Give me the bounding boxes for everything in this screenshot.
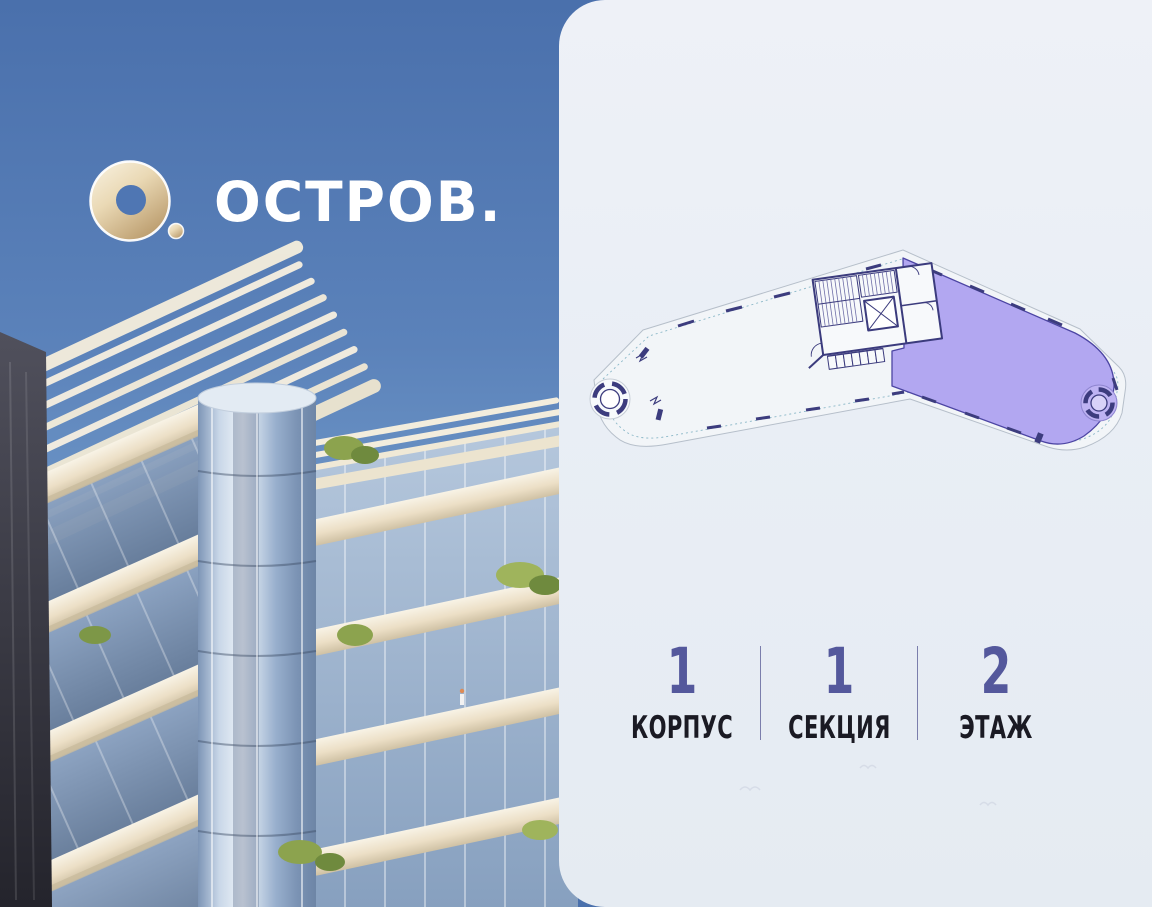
info-sektsiya: 1 СЕКЦИЯ xyxy=(761,642,917,746)
right-stair-circle xyxy=(1081,385,1117,421)
brand-logo[interactable]: ОСТРОВ. xyxy=(84,156,503,248)
left-stair-circle xyxy=(590,379,630,419)
glass-elevator-column xyxy=(198,383,316,907)
person-on-balcony xyxy=(460,689,464,705)
sektsiya-label: СЕКЦИЯ xyxy=(764,710,915,746)
korpus-value: 1 xyxy=(660,642,704,702)
app-screen: ОСТРОВ. xyxy=(0,0,1152,907)
gold-ring-logo-icon xyxy=(84,156,190,248)
building-photo xyxy=(0,0,578,907)
building-render xyxy=(0,0,578,907)
sektsiya-value: 1 xyxy=(817,642,861,702)
floor-plan[interactable] xyxy=(570,240,1152,475)
info-korpus: 1 КОРПУС xyxy=(604,642,760,746)
etazh-value: 2 xyxy=(974,642,1018,702)
elevator-shaft xyxy=(864,297,898,331)
brand-name: ОСТРОВ. xyxy=(214,175,503,230)
unit-info-row: 1 КОРПУС 1 СЕКЦИЯ 2 ЭТАЖ xyxy=(604,642,1076,746)
korpus-label: КОРПУС xyxy=(607,710,757,746)
dark-stone-facade xyxy=(0,332,52,907)
info-etazh: 2 ЭТАЖ xyxy=(918,642,1074,746)
etazh-label: ЭТАЖ xyxy=(942,710,1050,746)
